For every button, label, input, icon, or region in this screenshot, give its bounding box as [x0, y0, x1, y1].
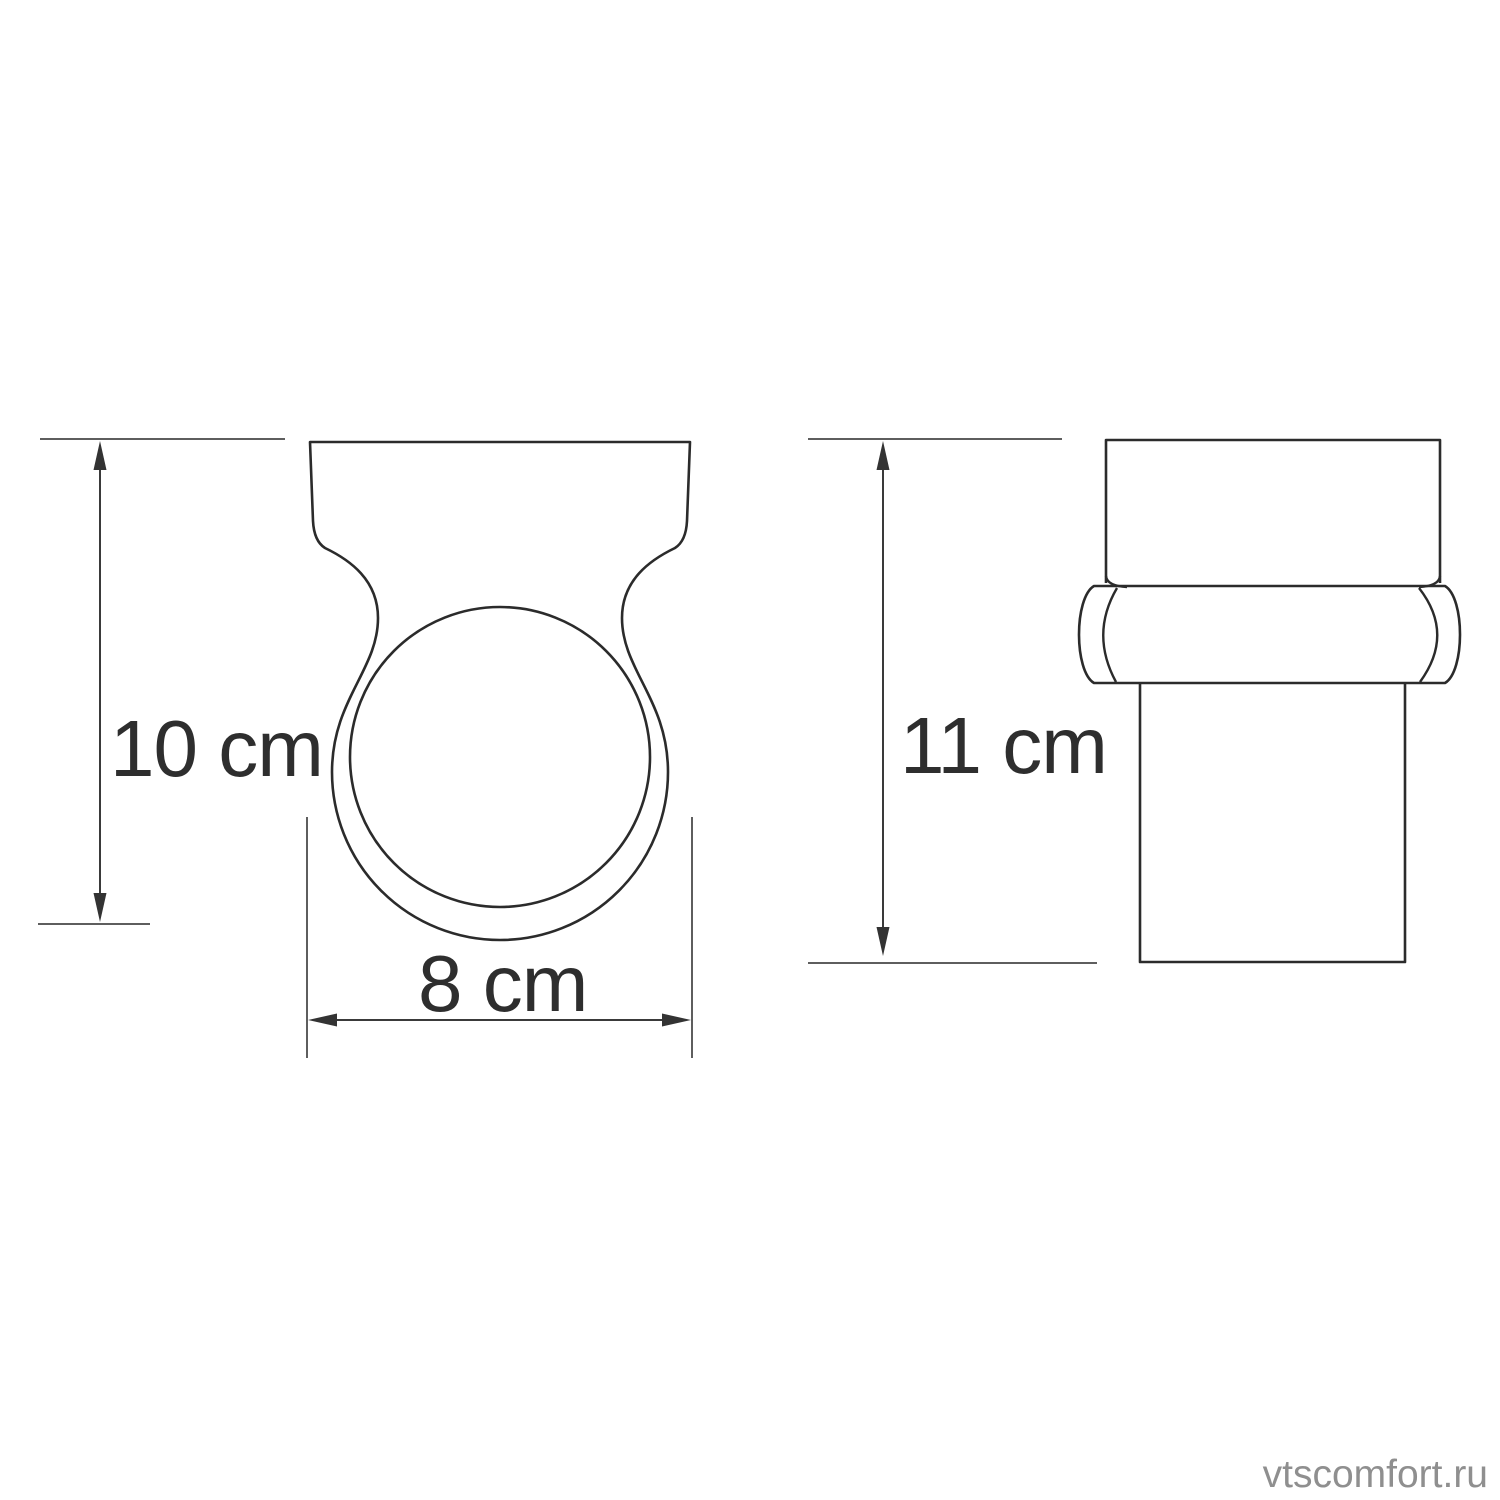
side-view-cup-top: [1106, 440, 1440, 583]
arrow-side-height-up: [877, 441, 890, 470]
arrow-front-height-down: [94, 893, 107, 922]
front-view-ring-inner-circle: [350, 607, 650, 907]
side-height-label: 11 cm: [900, 706, 1107, 786]
arrow-front-height-up: [94, 441, 107, 470]
arrow-front-width-right: [662, 1014, 691, 1027]
front-width-label: 8 cm: [418, 944, 587, 1024]
front-height-label: 10 cm: [110, 709, 323, 789]
site-watermark: vtscomfort.ru: [1263, 1455, 1488, 1494]
side-view: [1079, 440, 1460, 962]
side-view-cup-bottom: [1140, 684, 1405, 962]
diagram-page: 10 cm 8 cm 11 cm vtscomfort.ru: [0, 0, 1500, 1500]
arrow-front-width-left: [308, 1014, 337, 1027]
front-view: [310, 442, 690, 940]
arrow-side-height-down: [877, 927, 890, 956]
side-view-holder-ring: [1079, 586, 1460, 683]
